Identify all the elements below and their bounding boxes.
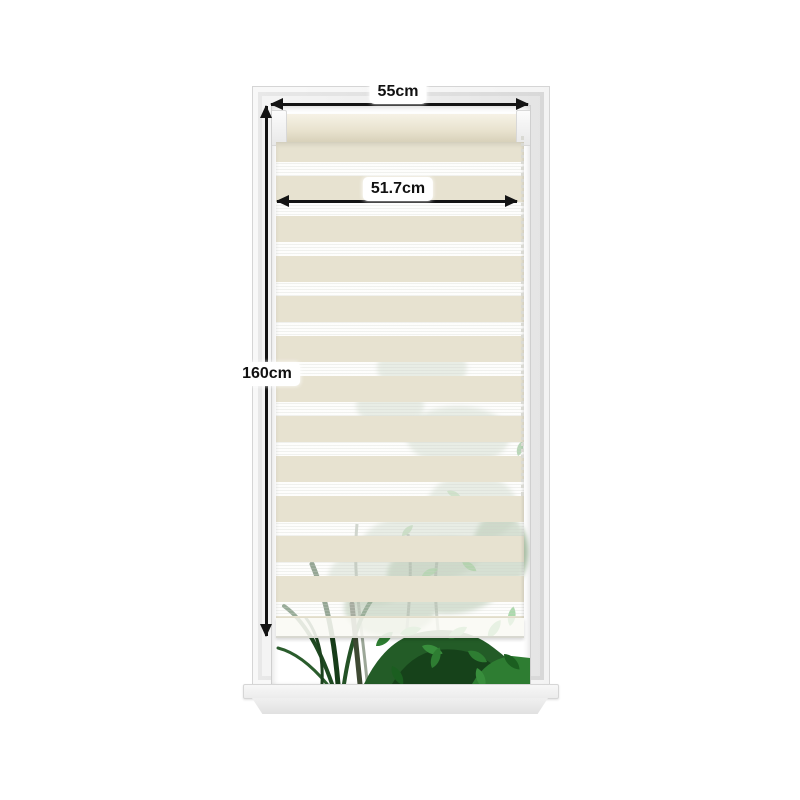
zebra-fabric-stripes — [276, 142, 524, 618]
dimension-label-fabric-width: 51.7cm — [363, 177, 433, 201]
blind-pull-chain — [521, 136, 524, 496]
product-dimension-diagram: 55cm 51.7cm 160cm — [0, 0, 800, 800]
window-sill — [243, 684, 559, 699]
window-sill-apron — [252, 698, 548, 714]
roller-cassette — [274, 114, 526, 142]
dimension-label-outer-width: 55cm — [370, 80, 427, 104]
dimension-label-height: 160cm — [234, 362, 300, 386]
roller-bracket-left — [271, 110, 287, 146]
blind-bottom-rail — [276, 618, 524, 638]
